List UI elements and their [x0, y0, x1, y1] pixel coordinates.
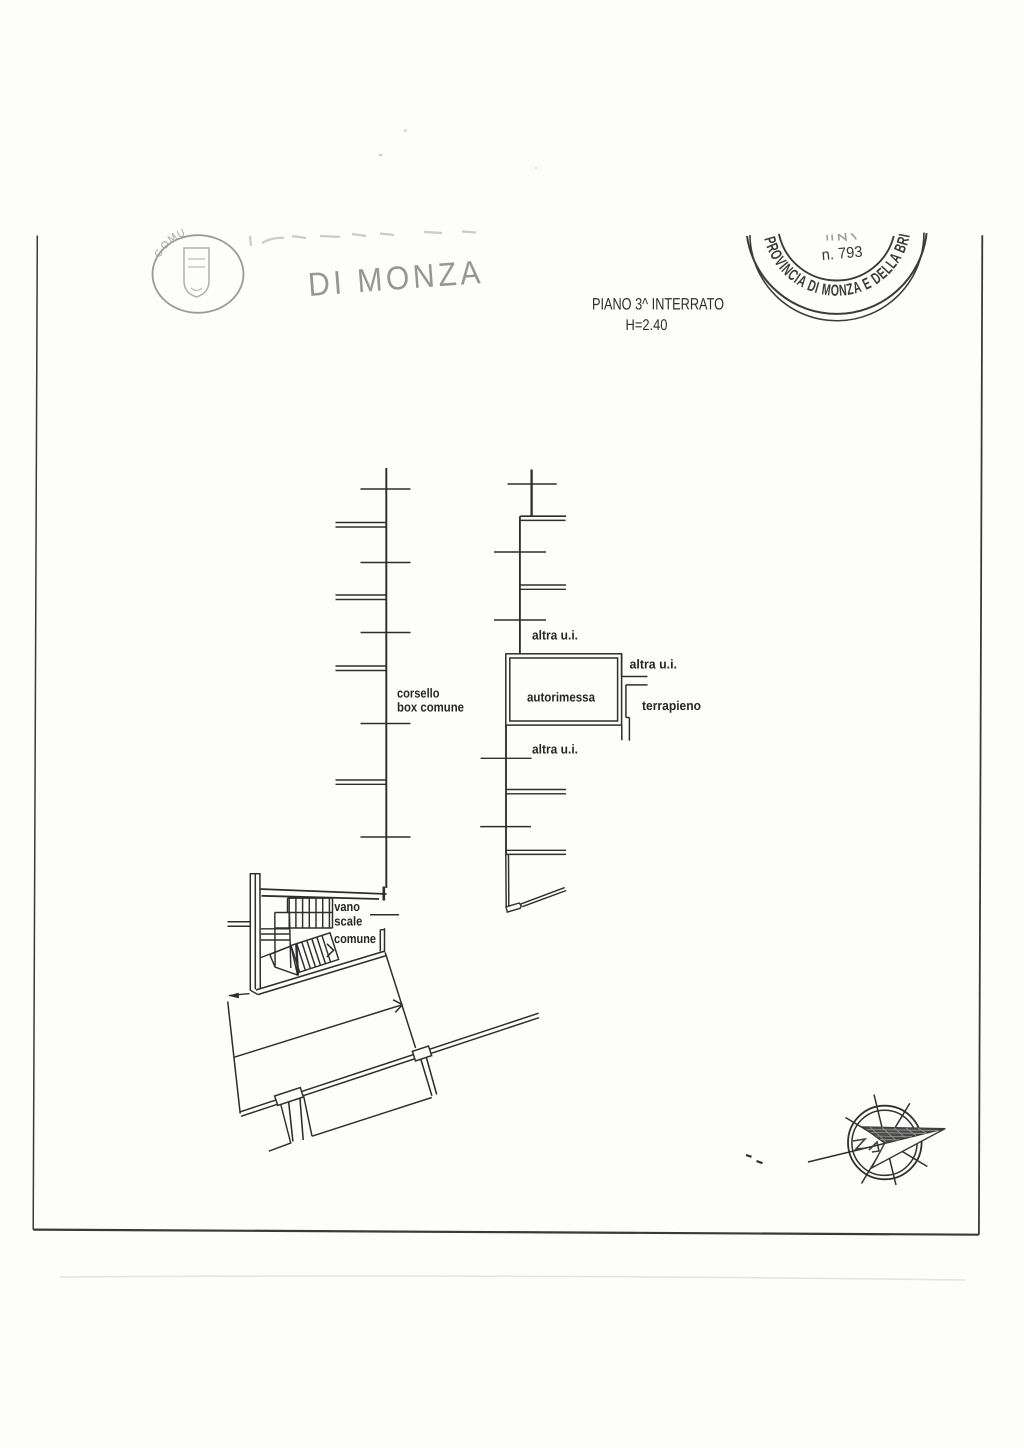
svg-text:scale: scale	[334, 913, 362, 928]
svg-text:corsello: corsello	[397, 686, 440, 701]
svg-text:DI MONZA: DI MONZA	[307, 253, 485, 303]
svg-text:altra u.i.: altra u.i.	[630, 657, 678, 672]
svg-text:autorimessa: autorimessa	[527, 690, 596, 705]
svg-text:vano: vano	[334, 899, 360, 914]
svg-text:PROVINCIA DI MONZA E DELLA BRI: PROVINCIA DI MONZA E DELLA BRI	[760, 232, 914, 300]
svg-text:PIANO 3^ INTERRATO: PIANO 3^ INTERRATO	[592, 296, 724, 314]
svg-text:altra u.i.: altra u.i.	[532, 742, 578, 757]
svg-text:comune: comune	[334, 931, 376, 946]
svg-text:H=2.40: H=2.40	[626, 317, 668, 334]
svg-text:terrapieno: terrapieno	[642, 698, 701, 713]
svg-text:n. 793: n. 793	[821, 244, 863, 265]
svg-text:altra u.i.: altra u.i.	[532, 628, 578, 643]
svg-text:box comune: box comune	[397, 700, 464, 715]
